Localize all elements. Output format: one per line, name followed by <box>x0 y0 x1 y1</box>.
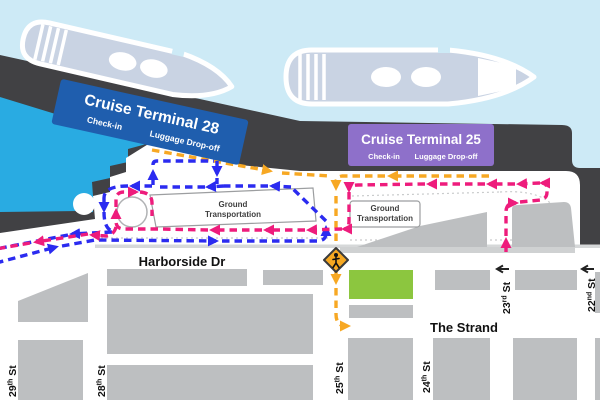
city-block <box>435 270 490 290</box>
transport-island <box>512 202 575 247</box>
city-block <box>348 338 413 400</box>
port-terminal-map: Ground Transportation Ground Transportat… <box>0 0 600 400</box>
ground-transportation-label: Ground <box>371 204 400 213</box>
the-strand-label: The Strand <box>430 320 498 335</box>
city-block <box>349 305 413 318</box>
harborside-dr-label: Harborside Dr <box>139 254 226 269</box>
ground-transportation-label: Ground <box>219 200 248 209</box>
city-block <box>513 338 577 400</box>
terminal-25-label: Cruise Terminal 25 Check-in Luggage Drop… <box>348 124 494 166</box>
city-block <box>595 338 600 400</box>
city-block <box>107 269 247 286</box>
terminal-25-luggage: Luggage Drop-off <box>415 152 478 161</box>
ground-transportation-label: Transportation <box>205 210 261 219</box>
city-block <box>263 270 323 285</box>
map-canvas: Ground Transportation Ground Transportat… <box>0 0 600 400</box>
terminal-25-checkin: Check-in <box>368 152 400 161</box>
city-block <box>515 270 577 290</box>
green-lot <box>349 270 413 299</box>
terminal-25-title: Cruise Terminal 25 <box>361 132 481 147</box>
city-block <box>107 365 313 400</box>
ground-transportation-label: Transportation <box>357 214 413 223</box>
city-block <box>18 340 83 400</box>
pier-notch <box>73 193 95 215</box>
roundabout <box>117 197 147 227</box>
city-block <box>433 338 490 400</box>
sidewalk <box>340 247 575 253</box>
city-block <box>107 294 313 354</box>
